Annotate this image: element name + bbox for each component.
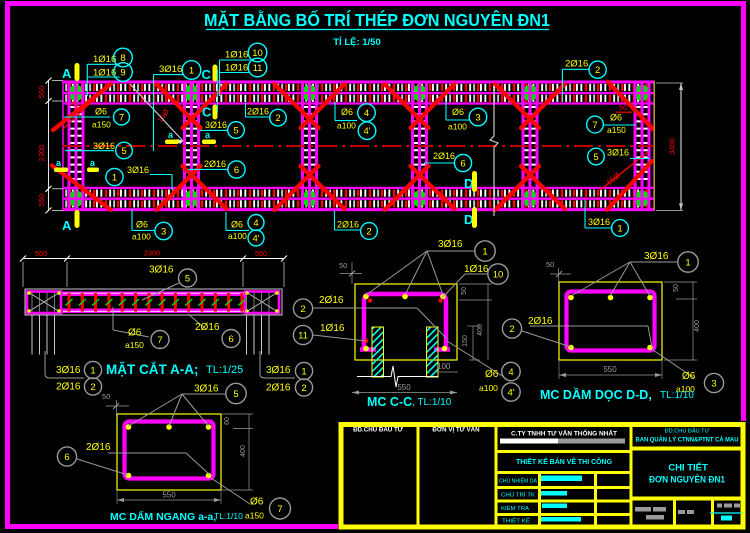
svg-text:9: 9 xyxy=(120,67,125,78)
svg-text:10: 10 xyxy=(493,269,504,280)
svg-text:1: 1 xyxy=(685,257,690,268)
svg-text:2Ø16: 2Ø16 xyxy=(528,316,553,327)
svg-text:550: 550 xyxy=(37,86,46,99)
svg-text:100: 100 xyxy=(437,362,451,371)
svg-text:50: 50 xyxy=(339,261,347,270)
svg-text:550: 550 xyxy=(35,249,47,258)
svg-text:1: 1 xyxy=(112,172,117,183)
svg-text:6: 6 xyxy=(64,452,69,463)
svg-text:1: 1 xyxy=(301,366,306,377)
svg-text:5: 5 xyxy=(233,389,238,400)
svg-text:11: 11 xyxy=(253,63,263,74)
svg-text:50: 50 xyxy=(461,287,468,295)
svg-text:A: A xyxy=(62,66,72,81)
svg-text:3Ø16: 3Ø16 xyxy=(93,141,115,151)
svg-text:3Ø16: 3Ø16 xyxy=(607,148,629,158)
svg-text:C: C xyxy=(202,105,212,120)
svg-text:a150: a150 xyxy=(92,120,111,130)
svg-text:550: 550 xyxy=(255,249,267,258)
svg-text:5: 5 xyxy=(593,152,598,163)
svg-text:THIẾT KẾ BẢN VẼ THI CÔNG: THIẾT KẾ BẢN VẼ THI CÔNG xyxy=(516,456,612,466)
svg-text:MC DẤM NGANG a-a,: MC DẤM NGANG a-a, xyxy=(110,510,216,523)
svg-text:2Ø16: 2Ø16 xyxy=(247,107,269,117)
svg-text:550: 550 xyxy=(603,365,617,374)
svg-text:Ø6: Ø6 xyxy=(682,371,696,382)
svg-text:a100: a100 xyxy=(337,121,356,131)
svg-text:50: 50 xyxy=(619,103,627,112)
svg-text:C.TY TNHH TƯ VẤN THỐNG NHẤT: C.TY TNHH TƯ VẤN THỐNG NHẤT xyxy=(511,431,617,438)
svg-text:4': 4' xyxy=(507,387,514,398)
svg-text:150: 150 xyxy=(462,335,469,347)
svg-text:1Ø16: 1Ø16 xyxy=(320,323,345,334)
svg-text:3Ø16: 3Ø16 xyxy=(588,217,610,227)
svg-text:ĐƠN VỊ TƯ VẤN: ĐƠN VỊ TƯ VẤN xyxy=(432,427,480,434)
svg-text:2: 2 xyxy=(90,382,95,393)
svg-text:Ø6: Ø6 xyxy=(250,497,264,508)
svg-text:a150: a150 xyxy=(125,340,144,350)
svg-text:1Ø16: 1Ø16 xyxy=(225,50,248,61)
svg-text:550: 550 xyxy=(162,491,176,500)
svg-text:50: 50 xyxy=(546,260,554,269)
svg-text:Ø6: Ø6 xyxy=(452,107,464,117)
svg-text:CHỦ TRÌ TK: CHỦ TRÌ TK xyxy=(501,492,535,499)
svg-text:a150: a150 xyxy=(245,511,264,521)
svg-text:2300: 2300 xyxy=(144,249,160,258)
svg-text:TL:1/25: TL:1/25 xyxy=(206,364,243,376)
svg-text:400: 400 xyxy=(694,320,701,332)
svg-text:5: 5 xyxy=(233,125,238,136)
svg-text:50: 50 xyxy=(673,284,680,292)
svg-text:a100: a100 xyxy=(228,231,247,241)
svg-text:10: 10 xyxy=(252,48,263,59)
svg-text:2Ø16: 2Ø16 xyxy=(565,59,588,70)
svg-text:Ø6: Ø6 xyxy=(610,113,622,123)
svg-text:3Ø16: 3Ø16 xyxy=(266,365,291,376)
svg-text:1Ø16: 1Ø16 xyxy=(225,63,248,74)
svg-text:2Ø16: 2Ø16 xyxy=(195,322,220,333)
svg-text:3Ø16: 3Ø16 xyxy=(149,265,174,276)
svg-text:3400: 3400 xyxy=(668,138,677,155)
svg-text:ĐD.CHỦ ĐẦU TƯ: ĐD.CHỦ ĐẦU TƯ xyxy=(353,427,404,434)
svg-text:BAN QUẢN LÝ CTNN&PTNT CÀ MAU: BAN QUẢN LÝ CTNN&PTNT CÀ MAU xyxy=(636,437,739,444)
svg-text:2: 2 xyxy=(275,113,280,124)
svg-text:MẶT BẰNG BỐ TRÍ THÉP ĐƠN NGUY: MẶT BẰNG BỐ TRÍ THÉP ĐƠN NGUYÊN ĐN1 xyxy=(204,9,550,30)
svg-text:3Ø16: 3Ø16 xyxy=(194,384,219,395)
svg-text:2Ø16: 2Ø16 xyxy=(56,382,81,393)
svg-text:1Ø16: 1Ø16 xyxy=(93,54,116,65)
svg-text:C: C xyxy=(202,67,212,82)
svg-text:CHỦ NHIỆM DA: CHỦ NHIỆM DA xyxy=(499,477,537,485)
svg-text:2300: 2300 xyxy=(37,145,46,162)
svg-text:1: 1 xyxy=(189,65,194,76)
svg-text:a100: a100 xyxy=(479,383,498,393)
svg-text:a150: a150 xyxy=(607,125,626,135)
svg-text:3Ø16: 3Ø16 xyxy=(56,365,81,376)
svg-text:KIỂM TRA: KIỂM TRA xyxy=(501,505,529,512)
svg-text:50: 50 xyxy=(102,392,110,401)
svg-text:400: 400 xyxy=(240,445,247,457)
svg-text:3Ø16: 3Ø16 xyxy=(438,239,463,250)
svg-text:4': 4' xyxy=(363,126,370,137)
svg-text:7: 7 xyxy=(592,120,597,131)
svg-text:7: 7 xyxy=(157,335,162,346)
svg-text:6: 6 xyxy=(228,334,233,345)
svg-text:1: 1 xyxy=(90,365,95,376)
svg-text:4: 4 xyxy=(364,108,369,119)
svg-text:Ø6: Ø6 xyxy=(231,220,243,230)
svg-text:6: 6 xyxy=(460,158,465,169)
svg-text:7: 7 xyxy=(277,504,282,515)
svg-text:2Ø16: 2Ø16 xyxy=(204,159,226,169)
svg-text:3Ø16: 3Ø16 xyxy=(127,165,149,175)
svg-text:5: 5 xyxy=(121,146,126,157)
svg-text:THIẾT KẾ: THIẾT KẾ xyxy=(502,518,530,525)
svg-text:Ø6: Ø6 xyxy=(136,220,148,230)
svg-text:TL:1/10: TL:1/10 xyxy=(660,390,694,401)
svg-text:TL:1/10: TL:1/10 xyxy=(214,511,243,521)
svg-text:1Ø16: 1Ø16 xyxy=(93,68,116,79)
svg-text:MẶT CẮT A-A;: MẶT CẮT A-A; xyxy=(106,362,198,377)
svg-text:2: 2 xyxy=(509,324,514,335)
svg-text:4: 4 xyxy=(508,367,513,378)
svg-text:2Ø16: 2Ø16 xyxy=(319,295,344,306)
svg-text:D: D xyxy=(464,176,473,191)
svg-text:CHI TIẾT: CHI TIẾT xyxy=(668,463,708,474)
svg-text:2: 2 xyxy=(300,304,305,315)
svg-text:a100: a100 xyxy=(448,122,467,132)
svg-text:2Ø16: 2Ø16 xyxy=(266,383,291,394)
svg-text:a100: a100 xyxy=(132,232,151,242)
svg-text:3: 3 xyxy=(475,112,480,123)
svg-text:Ø6: Ø6 xyxy=(485,369,499,380)
svg-text:60: 60 xyxy=(224,417,231,425)
svg-text:7: 7 xyxy=(119,112,124,123)
svg-text:1: 1 xyxy=(617,223,622,234)
svg-text:4: 4 xyxy=(253,218,258,229)
svg-text:2Ø16: 2Ø16 xyxy=(337,220,359,230)
svg-text:Ø6: Ø6 xyxy=(341,107,353,117)
svg-text:3Ø16: 3Ø16 xyxy=(644,251,669,262)
svg-text:11: 11 xyxy=(298,330,308,341)
svg-text:3: 3 xyxy=(711,378,716,389)
svg-text:2Ø16: 2Ø16 xyxy=(433,151,455,161)
svg-text:2: 2 xyxy=(301,383,306,394)
svg-text:2: 2 xyxy=(595,65,600,76)
svg-text:3Ø16: 3Ø16 xyxy=(205,120,227,130)
svg-text:, TL:1/10: , TL:1/10 xyxy=(412,397,452,408)
svg-text:4': 4' xyxy=(252,233,259,244)
svg-text:1: 1 xyxy=(482,246,487,257)
svg-text:TỈ LỆ: 1/50: TỈ LỆ: 1/50 xyxy=(333,36,381,48)
svg-text:2: 2 xyxy=(366,226,371,237)
svg-text:ĐƠN NGUYÊN ĐN1: ĐƠN NGUYÊN ĐN1 xyxy=(649,474,726,486)
svg-text:D: D xyxy=(464,212,473,227)
svg-text:Ø6: Ø6 xyxy=(128,328,142,339)
svg-text:3Ø16: 3Ø16 xyxy=(159,64,182,75)
svg-text:550: 550 xyxy=(397,383,411,392)
svg-text:Ø6: Ø6 xyxy=(95,107,107,117)
svg-text:6: 6 xyxy=(234,165,239,176)
svg-text:400: 400 xyxy=(477,324,484,336)
svg-text:2Ø16: 2Ø16 xyxy=(86,442,111,453)
svg-text:A: A xyxy=(62,218,72,233)
svg-text:MC C-C: MC C-C xyxy=(367,395,412,409)
svg-text:1Ø16: 1Ø16 xyxy=(464,264,489,275)
svg-text:550: 550 xyxy=(37,194,46,207)
svg-text:5: 5 xyxy=(185,273,190,284)
svg-text:3: 3 xyxy=(161,226,166,237)
svg-text:MC DẦM DỌC D-D,: MC DẦM DỌC D-D, xyxy=(540,387,652,402)
svg-text:ĐD:CHỦ ĐẦU TƯ: ĐD:CHỦ ĐẦU TƯ xyxy=(665,428,710,435)
